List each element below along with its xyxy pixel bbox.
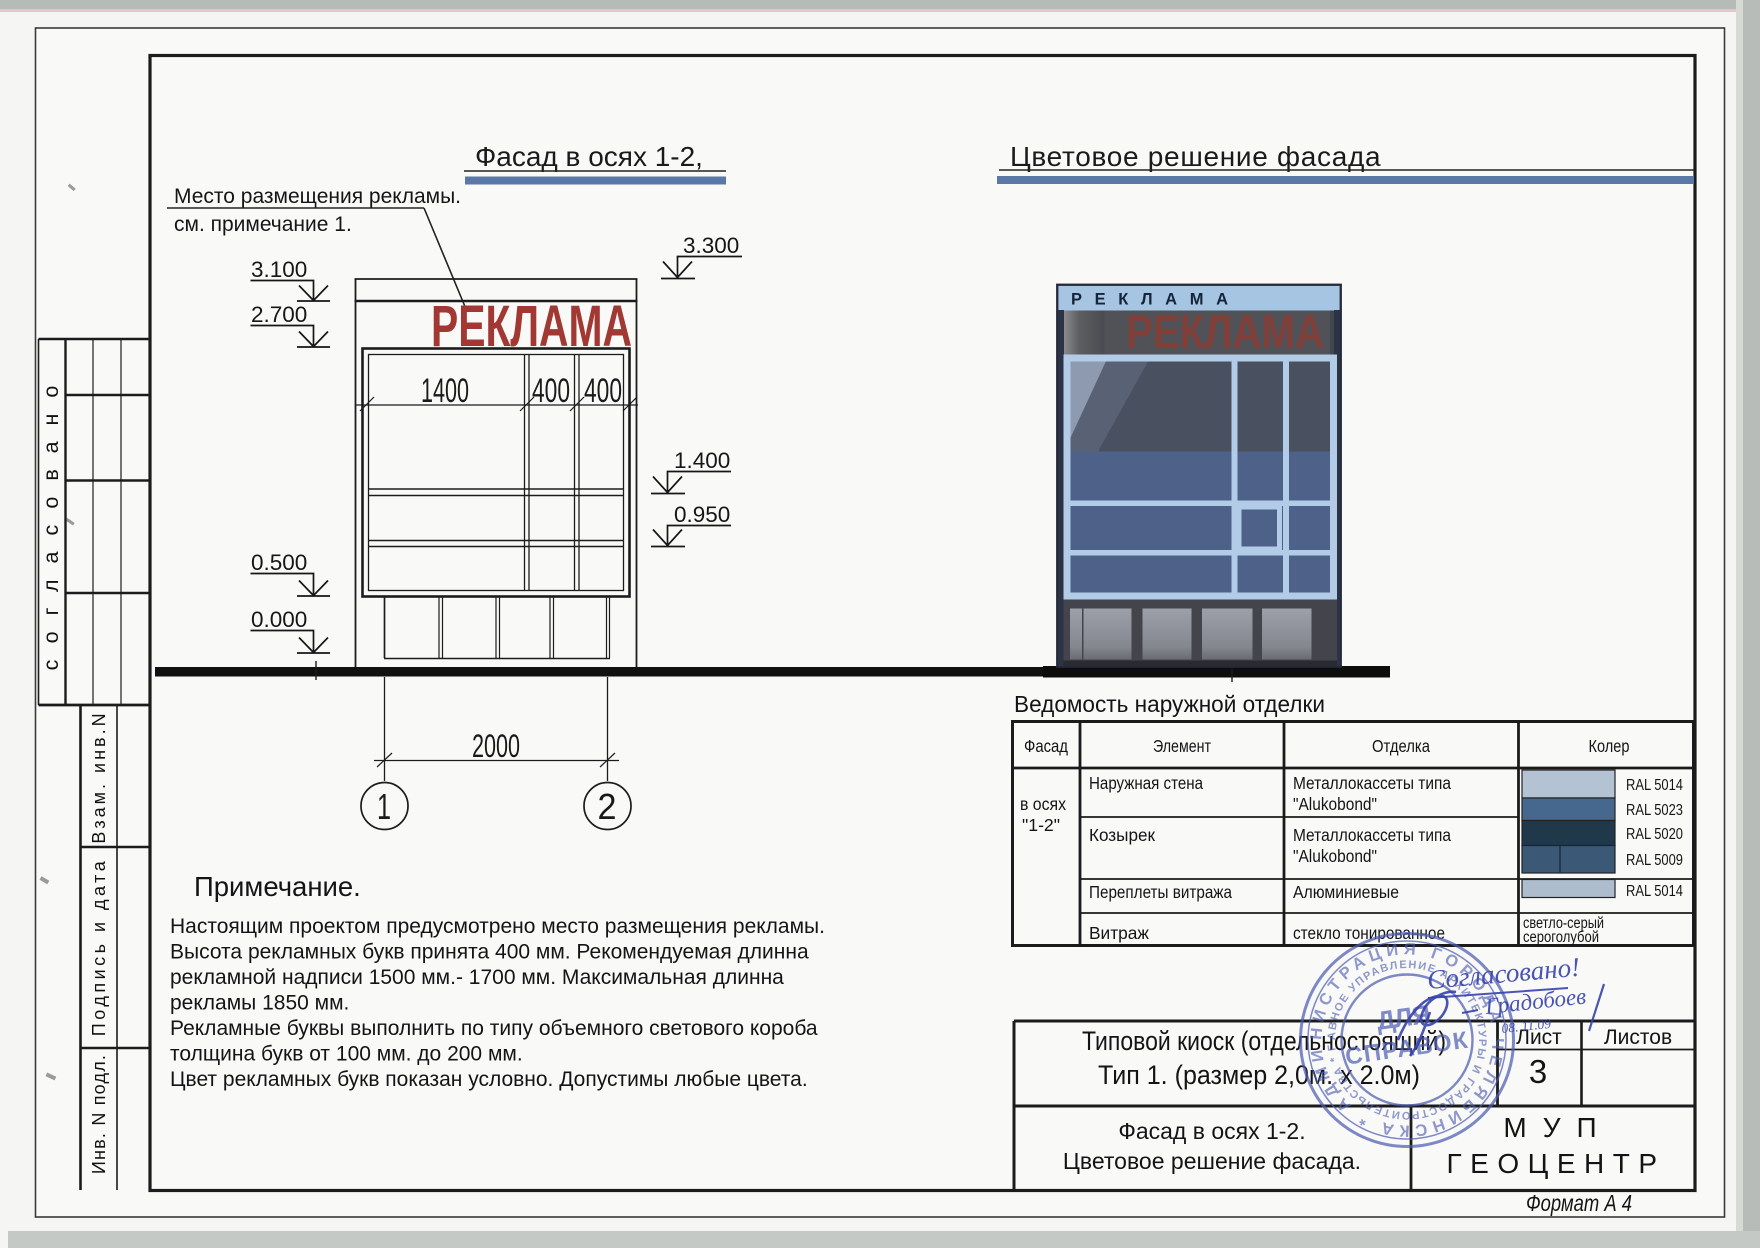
svg-text:Козырек: Козырек xyxy=(1089,825,1155,845)
svg-text:"Alukobond": "Alukobond" xyxy=(1293,794,1377,814)
svg-text:см. примечание 1.: см. примечание 1. xyxy=(174,213,352,236)
svg-text:1.400: 1.400 xyxy=(674,448,730,473)
svg-text:ГЕОЦЕНТР: ГЕОЦЕНТР xyxy=(1446,1148,1665,1179)
svg-text:RAL 5014: RAL 5014 xyxy=(1626,777,1683,794)
svg-text:Место размещения рекламы.: Место размещения рекламы. xyxy=(174,185,461,208)
svg-text:2: 2 xyxy=(598,786,617,827)
svg-text:3: 3 xyxy=(1529,1053,1547,1090)
svg-text:Витраж: Витраж xyxy=(1089,923,1149,943)
svg-text:Наружная стена: Наружная стена xyxy=(1089,773,1203,793)
svg-text:Цветовое решение фасада.: Цветовое решение фасада. xyxy=(1063,1148,1361,1174)
svg-text:Колер: Колер xyxy=(1589,736,1630,756)
svg-text:RAL 5009: RAL 5009 xyxy=(1626,852,1683,869)
svg-text:Цвет рекламных букв показан ус: Цвет рекламных букв показан условно. Доп… xyxy=(170,1068,808,1091)
svg-text:Высота рекламных букв принята: Высота рекламных букв принята 400 мм. Ре… xyxy=(170,941,809,964)
svg-text:Подпись и дата: Подпись и дата xyxy=(89,858,109,1036)
svg-text:Элемент: Элемент xyxy=(1153,736,1211,756)
svg-text:Фасад: Фасад xyxy=(1024,736,1068,756)
svg-text:1400: 1400 xyxy=(421,372,469,410)
svg-text:Алюминиевые: Алюминиевые xyxy=(1293,882,1399,902)
svg-text:"1-2": "1-2" xyxy=(1022,815,1060,835)
svg-text:Цветовое решение фасада: Цветовое решение фасада xyxy=(1010,141,1381,172)
svg-text:Металлокассеты типа: Металлокассеты типа xyxy=(1293,773,1451,793)
svg-text:400: 400 xyxy=(584,372,622,410)
svg-text:0.000: 0.000 xyxy=(251,607,307,632)
svg-text:RAL 5023: RAL 5023 xyxy=(1626,802,1683,819)
svg-text:Формат А 4: Формат А 4 xyxy=(1526,1190,1632,1216)
svg-text:3.100: 3.100 xyxy=(251,257,307,282)
svg-text:в осях: в осях xyxy=(1020,794,1066,814)
svg-text:толщина букв от 100 мм. до 200: толщина букв от 100 мм. до 200 мм. xyxy=(170,1043,523,1066)
svg-text:0.950: 0.950 xyxy=(674,502,730,527)
svg-text:Взам. инв.N: Взам. инв.N xyxy=(89,710,109,843)
svg-text:Рекламные буквы выполнить по т: Рекламные буквы выполнить по типу объемн… xyxy=(170,1017,818,1040)
svg-text:2000: 2000 xyxy=(472,728,520,764)
svg-text:Ведомость наружной отделки: Ведомость наружной отделки xyxy=(1014,691,1325,717)
svg-text:RAL 5014: RAL 5014 xyxy=(1626,883,1683,900)
svg-text:согласовано: согласовано xyxy=(39,370,63,671)
svg-text:2.700: 2.700 xyxy=(251,302,307,327)
svg-text:рекламной надписи 1500 мм.- 17: рекламной надписи 1500 мм.- 1700 мм. Мак… xyxy=(170,966,784,989)
svg-text:Металлокассеты типа: Металлокассеты типа xyxy=(1293,825,1451,845)
svg-text:400: 400 xyxy=(532,372,570,410)
svg-text:Отделка: Отделка xyxy=(1372,736,1430,756)
svg-text:Листов: Листов xyxy=(1604,1026,1672,1049)
svg-text:рекламы 1850 мм.: рекламы 1850 мм. xyxy=(170,992,349,1015)
svg-text:Примечание.: Примечание. xyxy=(194,871,361,902)
svg-text:Настоящим проектом предусмотре: Настоящим проектом предусмотрено место р… xyxy=(170,915,825,938)
svg-text:RAL 5020: RAL 5020 xyxy=(1626,826,1683,843)
svg-text:0.500: 0.500 xyxy=(251,550,307,575)
svg-text:РЕКЛАМА: РЕКЛАМА xyxy=(1126,305,1324,358)
svg-text:Переплеты витража: Переплеты витража xyxy=(1089,882,1232,902)
svg-text:Инв. N подл.: Инв. N подл. xyxy=(89,1054,109,1174)
svg-text:"Alukobond": "Alukobond" xyxy=(1293,846,1377,866)
svg-text:МУП: МУП xyxy=(1503,1112,1612,1143)
svg-text:Фасад в осях 1-2.: Фасад в осях 1-2. xyxy=(1118,1118,1305,1144)
svg-text:3.300: 3.300 xyxy=(683,233,739,258)
svg-text:сероголубой: сероголубой xyxy=(1523,929,1599,946)
svg-text:1: 1 xyxy=(377,786,391,827)
svg-text:Фасад в осях 1-2,: Фасад в осях 1-2, xyxy=(475,141,703,172)
